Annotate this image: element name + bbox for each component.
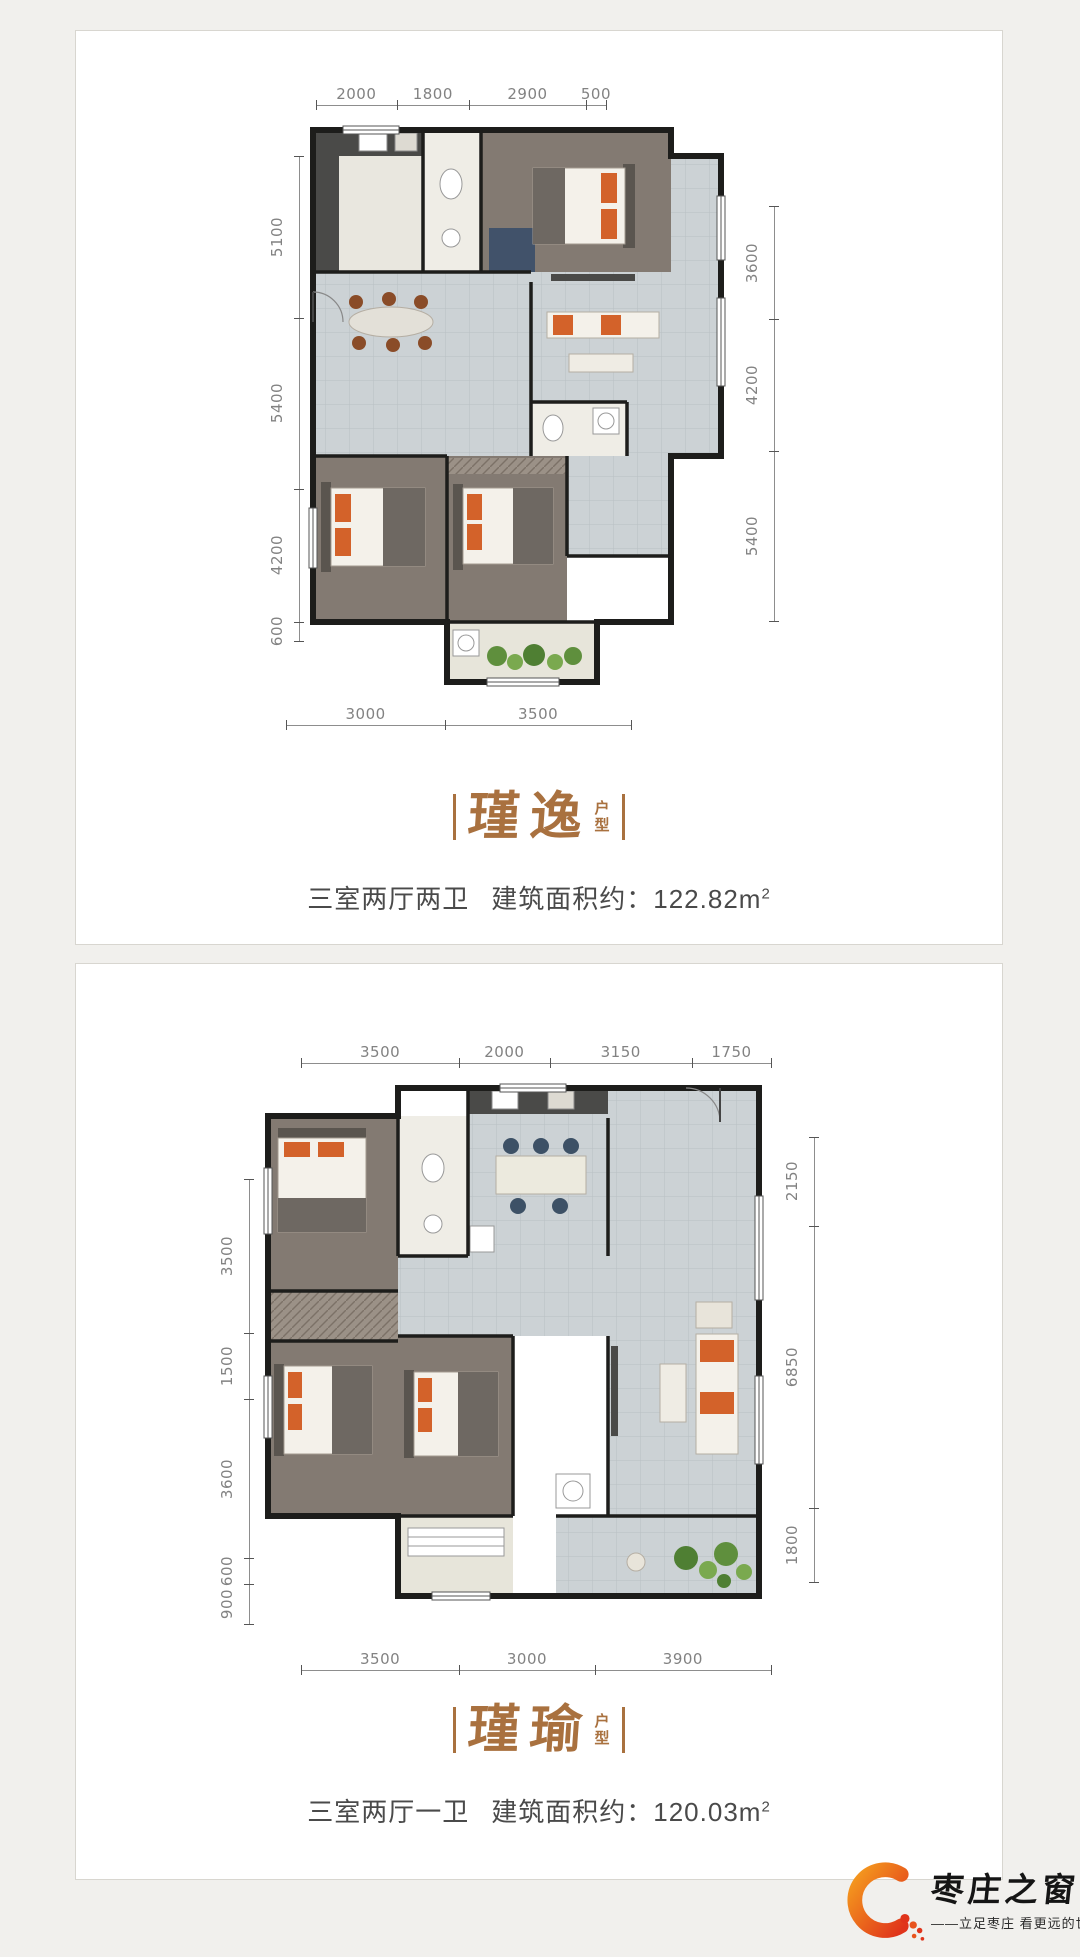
- bathroom-1: [423, 130, 481, 272]
- area-value: 122.82m: [653, 884, 761, 914]
- dimension-segment: 2000: [316, 86, 397, 106]
- dimension-label: 600: [268, 616, 286, 646]
- dimension-segment: 3500: [445, 706, 631, 726]
- dimension-label: 3600: [218, 1459, 236, 1499]
- dimension-label: 3500: [218, 1236, 236, 1276]
- dimension-segment: 3500: [216, 1179, 250, 1333]
- kitchen-dining: [468, 1088, 608, 1256]
- bedroom-bottom-middle: [447, 456, 567, 622]
- floorplan-card-jinyi: 200018002900500 510054004200600 36004200…: [75, 30, 1003, 945]
- dimension-label: 6850: [783, 1347, 801, 1387]
- dimension-segment: 3500: [301, 1044, 459, 1064]
- dimension-segment: 1800: [781, 1508, 815, 1582]
- dimension-segment: 1500: [216, 1333, 250, 1399]
- area-label: 建筑面积约：: [491, 1797, 653, 1827]
- bedroom-bottom-left: [313, 456, 447, 622]
- dimension-label: 1800: [413, 85, 453, 103]
- plan-description-jinyu: 三室两厅一卫建筑面积约：120.03m2: [76, 1792, 1002, 1829]
- bedroom-top-left: [268, 1116, 398, 1291]
- dimension-label: 2000: [484, 1043, 524, 1061]
- dim-chain-bottom: 30003500: [286, 706, 631, 726]
- dimension-segment: 6850: [781, 1226, 815, 1508]
- dimension-label: 5400: [268, 383, 286, 423]
- dim-chain-left: 350015003600600900: [216, 1179, 250, 1624]
- bathroom: [398, 1116, 468, 1256]
- dimension-segment: 900: [216, 1584, 250, 1624]
- title-right-bar: [622, 1707, 625, 1753]
- plan-description-jinyi: 三室两厅两卫建筑面积约：122.82m2: [76, 879, 1002, 916]
- dimension-segment: 3150: [550, 1044, 692, 1064]
- dimension-label: 3000: [346, 705, 386, 723]
- dimension-segment: 3500: [301, 1651, 459, 1671]
- floorplan-card-jinyu: 3500200031501750 350015003600600900 2150…: [75, 963, 1003, 1880]
- dimension-label: 3150: [601, 1043, 641, 1061]
- bedroom-middle-left: [268, 1341, 398, 1516]
- area-superscript: 2: [761, 885, 770, 902]
- bedroom-top-right: [481, 130, 671, 282]
- bedroom-middle: [398, 1336, 513, 1516]
- dimension-segment: 5400: [741, 451, 775, 621]
- floor-plan-2-drawing: [256, 1076, 771, 1631]
- bathroom-2: [531, 402, 627, 456]
- dimension-label: 3500: [360, 1650, 400, 1668]
- layout-text: 三室两厅两卫: [307, 884, 469, 914]
- dimension-segment: 5100: [266, 156, 300, 318]
- dimension-label: 3900: [663, 1650, 703, 1668]
- brand-tagline: ——立足枣庄 看更远的世界——: [931, 1913, 1080, 1932]
- area-label: 建筑面积约：: [491, 884, 653, 914]
- dimension-label: 4200: [743, 365, 761, 405]
- wardrobe-corridor: [268, 1291, 398, 1341]
- dimension-label: 3600: [743, 243, 761, 283]
- floorplan-2-area: 3500200031501750 350015003600600900 2150…: [186, 999, 896, 1689]
- dimension-segment: 3000: [286, 706, 445, 726]
- title-left-bar: [453, 794, 456, 840]
- plan-title-jinyi: 瑾逸 户型: [76, 791, 1002, 843]
- dimension-label: 2900: [507, 85, 547, 103]
- dimension-segment: 4200: [266, 489, 300, 622]
- dimension-label: 3500: [360, 1043, 400, 1061]
- dimension-segment: 500: [586, 86, 606, 106]
- dimension-label: 5400: [743, 516, 761, 556]
- dimension-label: 2000: [336, 85, 376, 103]
- dim-chain-top: 3500200031501750: [301, 1044, 771, 1064]
- dimension-segment: 3600: [216, 1399, 250, 1558]
- dimension-label: 5100: [268, 217, 286, 257]
- layout-text: 三室两厅一卫: [307, 1797, 469, 1827]
- e-swoosh-icon: [835, 1856, 927, 1948]
- dimension-segment: 1750: [692, 1044, 771, 1064]
- dimension-segment: 3000: [459, 1651, 595, 1671]
- dim-chain-right: 215068501800: [781, 1137, 815, 1582]
- plan-title-text: 瑾瑜: [466, 1704, 594, 1756]
- dimension-segment: 5400: [266, 318, 300, 489]
- dim-chain-bottom: 350030003900: [301, 1651, 771, 1671]
- dim-chain-left: 510054004200600: [266, 156, 300, 641]
- dimension-segment: 2150: [781, 1137, 815, 1226]
- dimension-label: 900: [218, 1589, 236, 1619]
- area-superscript: 2: [761, 1798, 770, 1815]
- floorplan-1-area: 200018002900500 510054004200600 36004200…: [196, 56, 886, 746]
- plan-title-jinyu: 瑾瑜 户型: [76, 1704, 1002, 1756]
- dim-chain-top: 200018002900500: [316, 86, 606, 106]
- site-logo: 枣庄之窗 ——立足枣庄 看更远的世界——: [835, 1852, 1080, 1952]
- floor-plan-1-drawing: [301, 116, 741, 691]
- dim-chain-right: 360042005400: [741, 206, 775, 621]
- plan-title-suffix: 户型: [594, 800, 610, 835]
- dimension-segment: 600: [266, 622, 300, 641]
- dimension-label: 2150: [783, 1161, 801, 1201]
- title-right-bar: [622, 794, 625, 840]
- dimension-segment: 4200: [741, 319, 775, 451]
- dimension-segment: 2900: [469, 86, 586, 106]
- dimension-label: 3000: [507, 1650, 547, 1668]
- dimension-label: 3500: [518, 705, 558, 723]
- dimension-segment: 600: [216, 1558, 250, 1584]
- dimension-label: 500: [581, 85, 611, 103]
- dimension-segment: 3900: [595, 1651, 771, 1671]
- title-left-bar: [453, 1707, 456, 1753]
- dimension-segment: 2000: [459, 1044, 549, 1064]
- dimension-segment: 1800: [397, 86, 470, 106]
- dimension-label: 600: [218, 1556, 236, 1586]
- kitchen: [313, 130, 423, 272]
- area-value: 120.03m: [653, 1797, 761, 1827]
- dimension-label: 4200: [268, 535, 286, 575]
- plan-title-text: 瑾逸: [466, 791, 594, 843]
- dimension-label: 1800: [783, 1525, 801, 1565]
- garden-terrace: [556, 1516, 759, 1596]
- balcony: [447, 622, 597, 682]
- dimension-segment: 3600: [741, 206, 775, 319]
- dimension-label: 1500: [218, 1346, 236, 1386]
- dimension-label: 1750: [711, 1043, 751, 1061]
- balcony: [398, 1516, 513, 1596]
- plan-title-suffix: 户型: [594, 1713, 610, 1748]
- brand-name: 枣庄之窗: [929, 1872, 1080, 1908]
